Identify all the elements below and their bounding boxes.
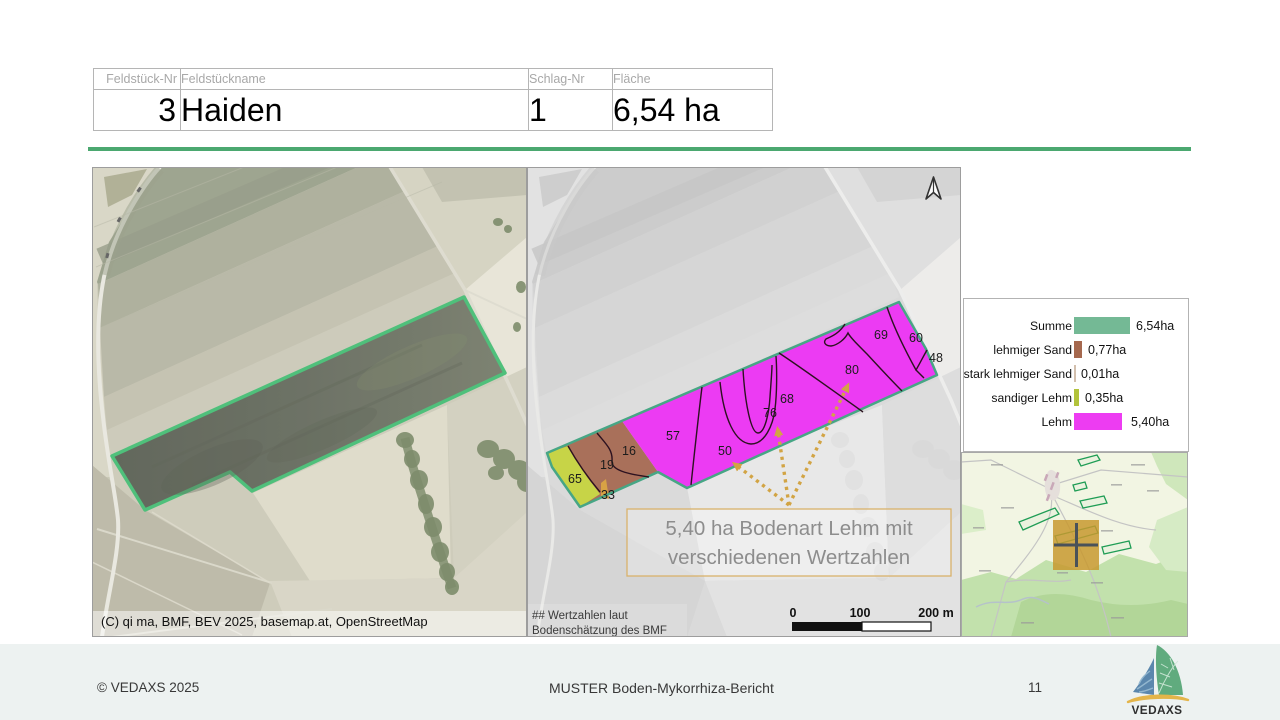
svg-text:5,40 ha Bodenart Lehm mit: 5,40 ha Bodenart Lehm mit	[665, 517, 913, 540]
svg-text:## Wertzahlen laut: ## Wertzahlen laut	[532, 610, 628, 622]
svg-text:76: 76	[763, 406, 777, 420]
svg-text:100: 100	[850, 606, 871, 620]
svg-text:68: 68	[780, 392, 794, 406]
svg-text:16: 16	[622, 444, 636, 458]
svg-text:19: 19	[600, 458, 614, 472]
svg-text:80: 80	[845, 363, 859, 377]
svg-text:(C) qi ma, BMF, BEV 2025, base: (C) qi ma, BMF, BEV 2025, basemap.at, Op…	[101, 614, 428, 629]
svg-text:69: 69	[874, 328, 888, 342]
svg-text:200 m: 200 m	[918, 606, 953, 620]
svg-text:VEDAXS: VEDAXS	[1132, 703, 1183, 717]
svg-text:verschiedenen Wertzahlen: verschiedenen Wertzahlen	[668, 546, 910, 569]
svg-text:50: 50	[718, 444, 732, 458]
svg-text:48: 48	[929, 351, 943, 365]
svg-text:60: 60	[909, 331, 923, 345]
svg-text:Bodenschätzung des BMF: Bodenschätzung des BMF	[532, 625, 667, 637]
svg-text:65: 65	[568, 472, 582, 486]
svg-text:0: 0	[790, 606, 797, 620]
svg-text:57: 57	[666, 429, 680, 443]
svg-text:33: 33	[601, 488, 615, 502]
